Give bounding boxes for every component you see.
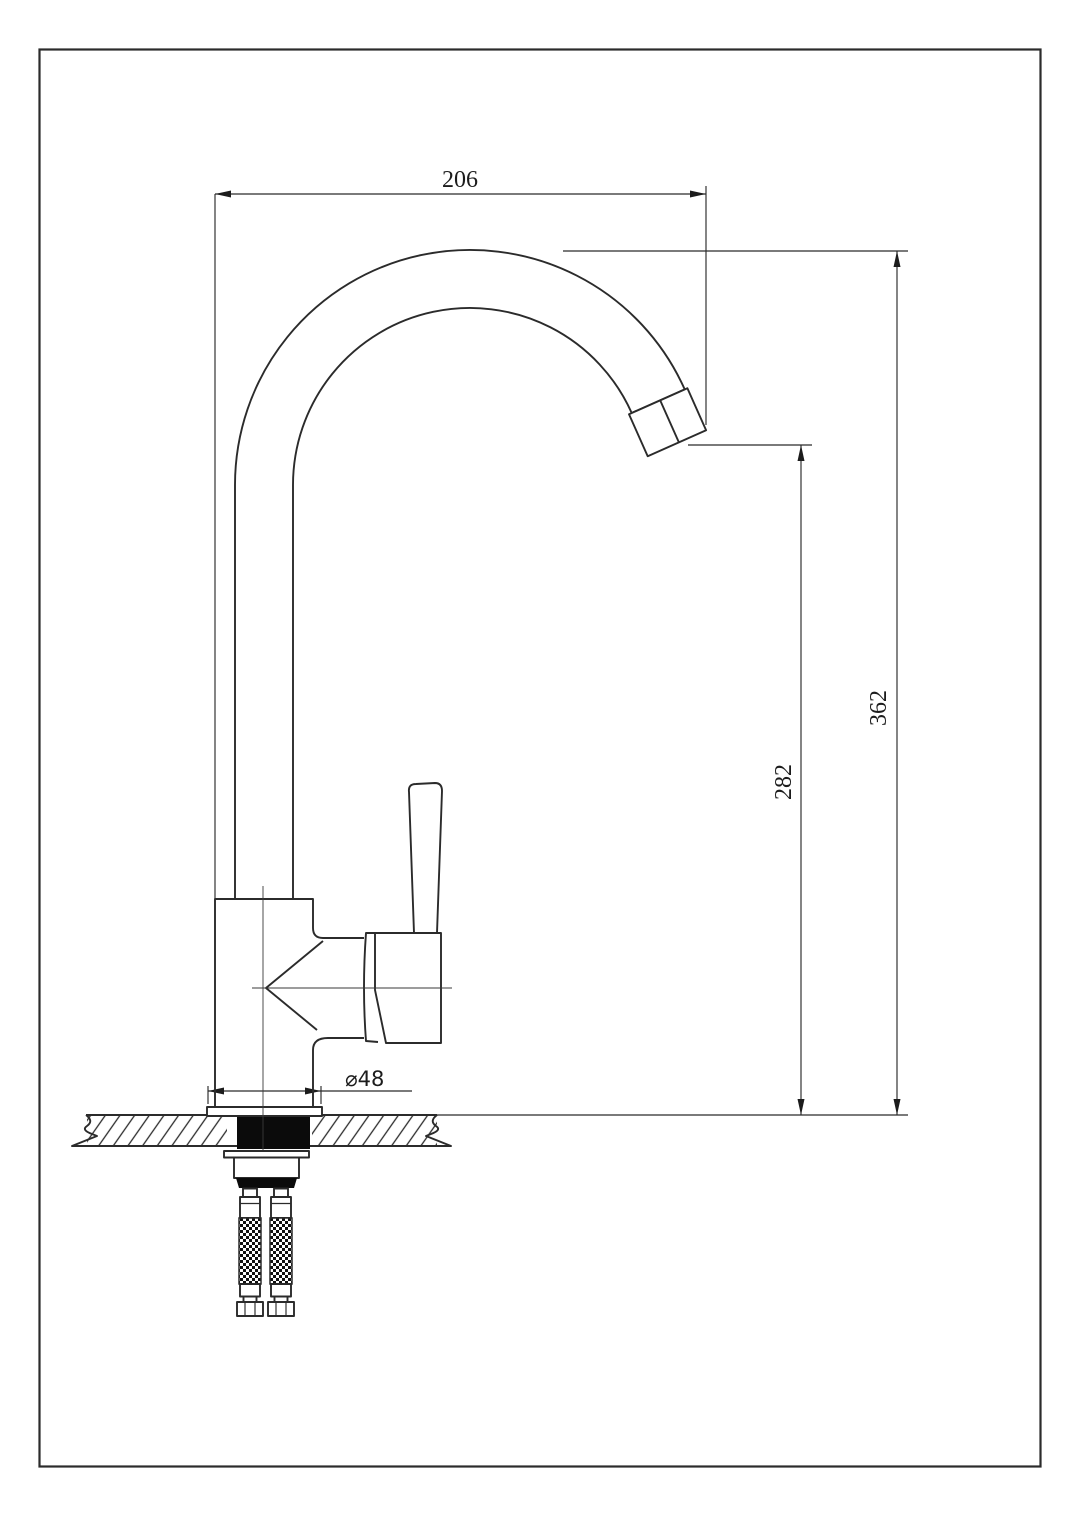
hose-braid [239, 1218, 261, 1284]
mounting-nut [234, 1158, 299, 1179]
supply-hose-left [237, 1189, 263, 1317]
sheet-border [40, 50, 1041, 1467]
base-plate [207, 1107, 322, 1116]
mounting-seal [236, 1178, 297, 1188]
hose-end-nut [237, 1302, 263, 1316]
countertop-hatch-right [312, 1115, 437, 1146]
faucet-body [215, 899, 364, 1107]
dim-282-label: 282 [771, 764, 797, 800]
mounting-flange [224, 1151, 309, 1158]
dimension-362: 362 [563, 251, 908, 1115]
supply-hose-right [268, 1189, 294, 1317]
faucet-spout [235, 250, 706, 899]
dimension-206: 206 [215, 167, 706, 899]
dimension-dia48: ⌀48 [208, 1067, 412, 1104]
handle-lever [409, 783, 442, 933]
dim-362-label: 362 [866, 690, 892, 726]
hose-end-nut [268, 1302, 294, 1316]
spout-aerator [629, 388, 706, 456]
mounting-gasket [237, 1116, 310, 1149]
countertop-hatch-left [87, 1115, 227, 1146]
spout-inner-curve [293, 308, 632, 899]
mounting-hardware [224, 1151, 309, 1188]
technical-drawing-canvas: 206 362 282 ⌀48 [0, 0, 1080, 1514]
spout-outer-curve [235, 250, 685, 899]
handle-assembly [364, 783, 442, 1043]
dim-dia48-label: ⌀48 [345, 1067, 384, 1091]
dimension-282: 282 [688, 445, 812, 1115]
countertop [72, 1115, 908, 1146]
dim-206-label: 206 [442, 167, 478, 193]
hose-braid [270, 1218, 292, 1284]
drawing-sheet: 206 362 282 ⌀48 [0, 0, 1080, 1514]
